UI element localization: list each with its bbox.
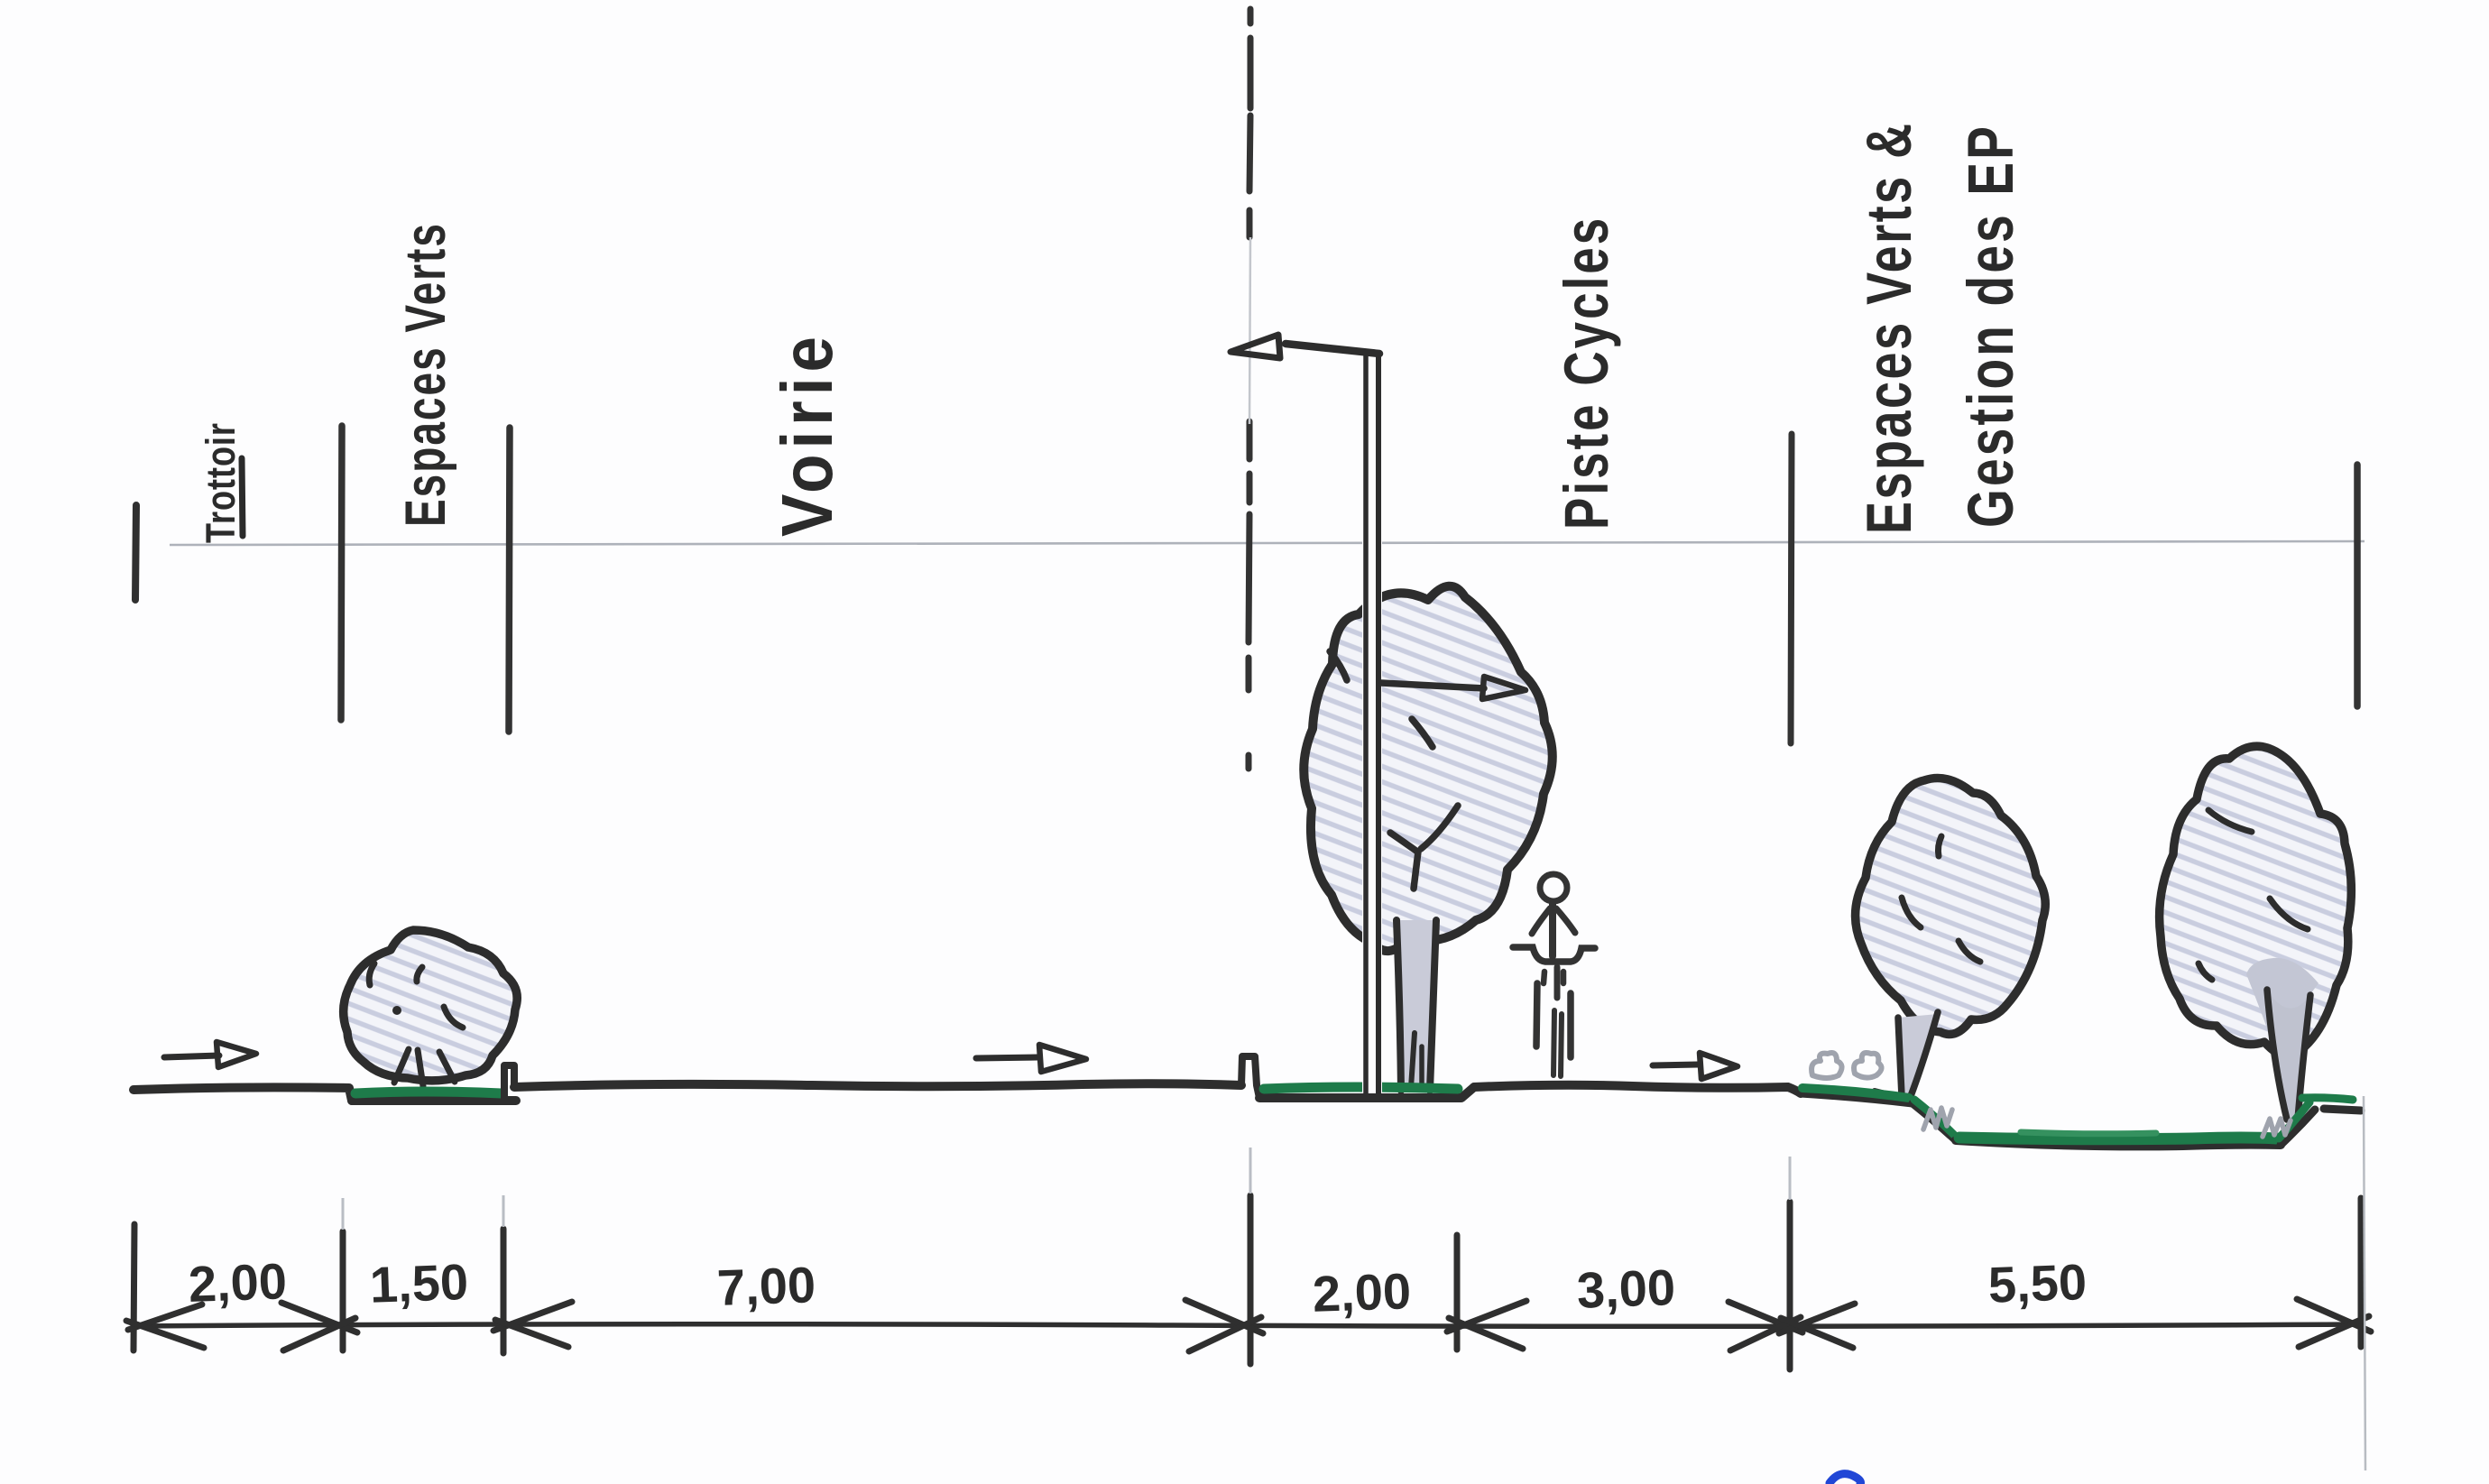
svg-text:Gestion des EP: Gestion des EP xyxy=(1954,124,2027,528)
svg-text:Piste Cycles: Piste Cycles xyxy=(1552,216,1621,530)
svg-text:Espaces Verts &: Espaces Verts & xyxy=(1854,121,1924,534)
svg-text:2,00: 2,00 xyxy=(188,1252,288,1313)
svg-text:7,00: 7,00 xyxy=(716,1256,816,1316)
svg-text:Trottoir: Trottoir xyxy=(198,422,244,543)
svg-text:1,50: 1,50 xyxy=(369,1253,469,1313)
svg-text:Espaces Verts: Espaces Verts xyxy=(393,222,457,527)
svg-text:5,50: 5,50 xyxy=(1987,1253,2088,1313)
svg-text:3,00: 3,00 xyxy=(1576,1258,1676,1319)
svg-text:2,00: 2,00 xyxy=(1312,1262,1412,1323)
svg-text:Voirie: Voirie xyxy=(767,331,847,537)
